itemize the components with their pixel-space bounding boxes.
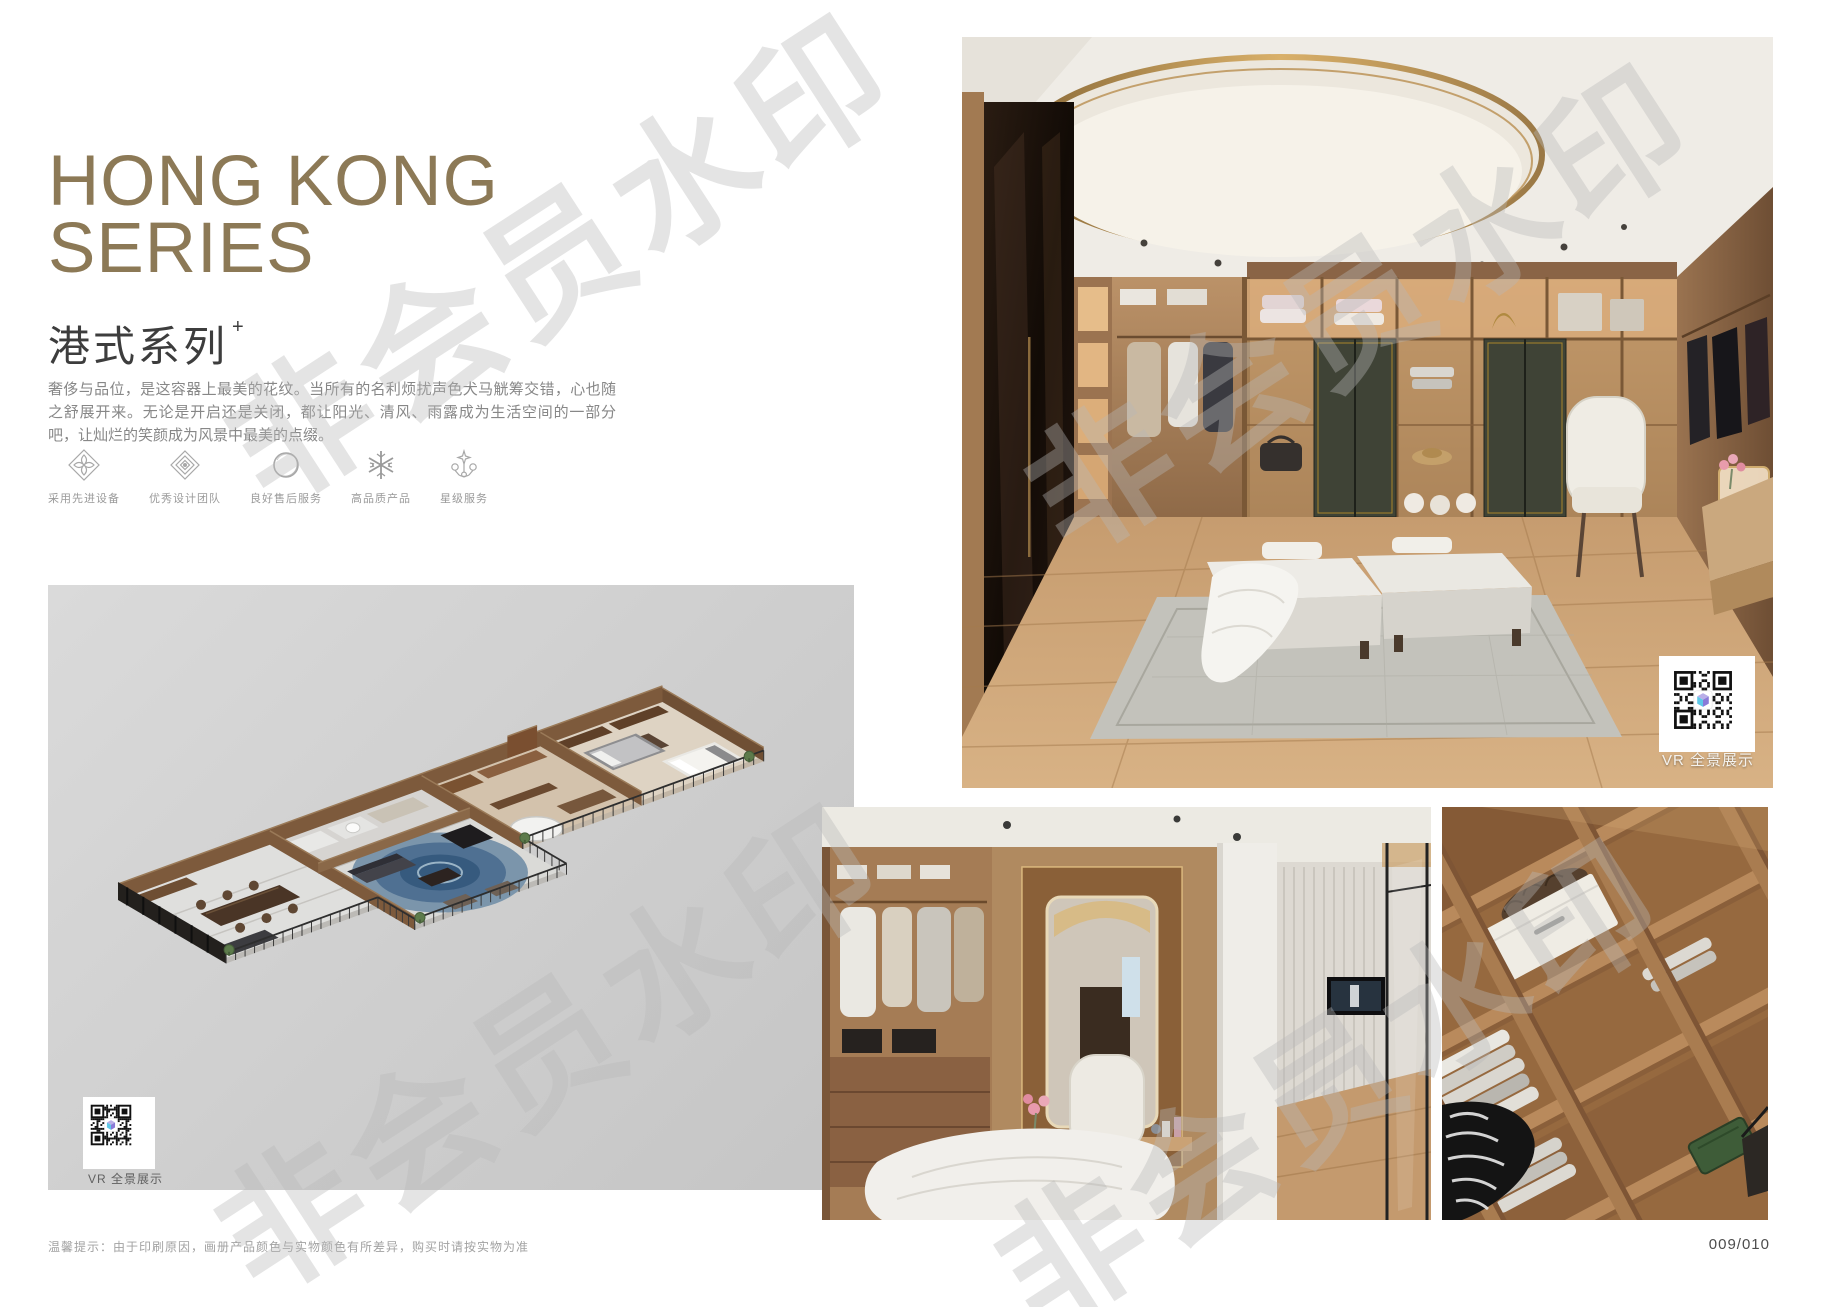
feature-label: 优秀设计团队: [149, 490, 221, 506]
qr-pattern: [1663, 660, 1743, 740]
title-block: HONG KONG SERIES 港式系列+: [48, 148, 499, 374]
footer-note: 温馨提示：由于印刷原因，画册产品颜色与实物颜色有所差异，购买时请按实物为准: [48, 1238, 529, 1255]
page-title-en: HONG KONG SERIES: [48, 148, 499, 283]
design-team-icon: [168, 448, 202, 482]
vr-qr-code: [1659, 656, 1755, 752]
shelf-closeup-illustration: [1442, 807, 1768, 1220]
feature-item: 星级服务: [440, 448, 488, 506]
dressing-area-illustration: [822, 807, 1431, 1220]
feature-label: 良好售后服务: [250, 490, 322, 506]
advanced-equipment-icon: [67, 448, 101, 482]
feature-item: 良好售后服务: [250, 448, 322, 506]
page-title-cn: 港式系列+: [48, 313, 499, 374]
vr-label: VR 全景展示: [88, 1170, 163, 1187]
walkin-closet-illustration: [962, 37, 1773, 788]
vr-label: VR 全景展示: [1662, 749, 1754, 770]
quality-product-icon: [364, 448, 398, 482]
vr-qr-code: [83, 1097, 155, 1169]
feature-item: 采用先进设备: [48, 448, 120, 506]
photo-dressing-area: [822, 807, 1431, 1220]
title-line2: SERIES: [48, 215, 499, 282]
title-line1: HONG KONG: [48, 148, 499, 215]
series-description: 奢侈与品位，是这容器上最美的花纹。当所有的名利烦扰声色犬马觥筹交错，心也随之舒展…: [48, 378, 616, 447]
feature-label: 星级服务: [440, 490, 488, 506]
feature-item: 优秀设计团队: [149, 448, 221, 506]
after-sales-icon: [269, 448, 303, 482]
star-service-icon: [447, 448, 481, 482]
feature-item: 高品质产品: [351, 448, 411, 506]
photo-walkin-closet: VR 全景展示: [962, 37, 1773, 788]
photo-shelf-closeup: [1442, 807, 1768, 1220]
feature-label: 高品质产品: [351, 490, 411, 506]
isometric-floorplan-illustration: [48, 585, 854, 1190]
catalog-page: HONG KONG SERIES 港式系列+ 奢侈与品位，是这容器上最美的花纹。…: [0, 0, 1836, 1307]
feature-list: 采用先进设备 优秀设计团队 良好售后服务 高品质产品: [48, 448, 488, 506]
feature-label: 采用先进设备: [48, 490, 120, 506]
title-superscript: +: [232, 316, 247, 338]
qr-pattern: [83, 1097, 139, 1153]
floorplan-panel: VR 全景展示: [48, 585, 854, 1190]
page-number: 009/010: [1709, 1236, 1770, 1253]
